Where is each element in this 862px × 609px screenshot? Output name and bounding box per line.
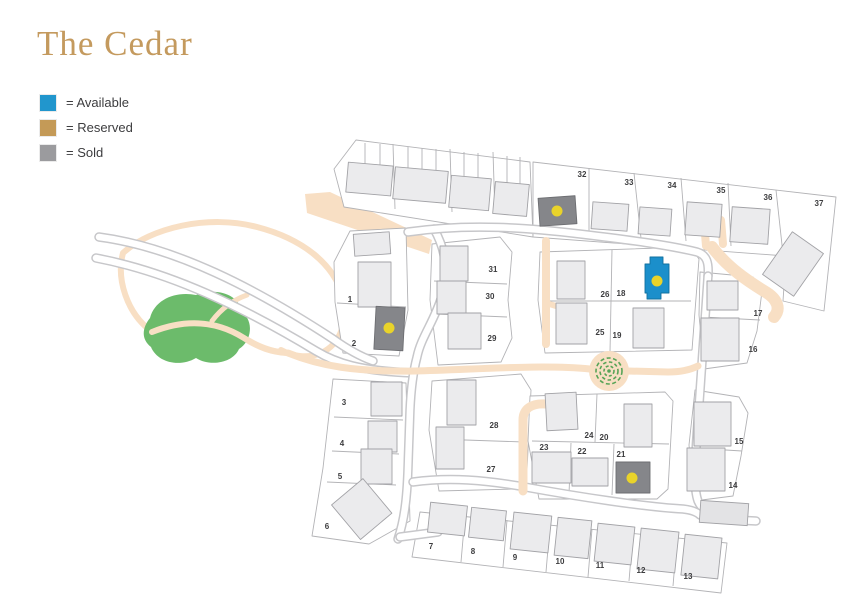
- plot-label-22: 22: [578, 447, 587, 456]
- house-plot-5: [361, 449, 392, 484]
- plot-label-6: 6: [325, 522, 330, 531]
- footpath-fork-b: [721, 220, 723, 244]
- house-plot-3: [371, 382, 402, 416]
- unit-marker-32: [552, 206, 563, 217]
- plot-label-28: 28: [490, 421, 499, 430]
- plot-label-16: 16: [749, 345, 758, 354]
- footpath-east-of-roundabout: [628, 366, 698, 372]
- house-plot-10: [554, 517, 592, 558]
- plot-label-18: 18: [617, 289, 626, 298]
- plot-label-20: 20: [600, 433, 609, 442]
- house-plot-16: [701, 318, 739, 361]
- house-plot-15: [694, 402, 731, 446]
- plot-label-26: 26: [601, 290, 610, 299]
- plot-label-33: 33: [625, 178, 634, 187]
- plot-label-5: 5: [338, 472, 343, 481]
- plot-label-9: 9: [513, 553, 518, 562]
- plot-label-1: 1: [348, 295, 353, 304]
- plot-label-31: 31: [489, 265, 498, 274]
- plot-label-14: 14: [729, 481, 738, 490]
- house-plot-8: [469, 507, 507, 540]
- plot-label-27: 27: [487, 465, 496, 474]
- plot-label-37: 37: [815, 199, 824, 208]
- house-plot-4: [368, 421, 397, 452]
- plot-label-15: 15: [735, 437, 744, 446]
- unit-marker-2: [384, 323, 395, 334]
- plot-label-24: 24: [585, 431, 594, 440]
- unit-marker-21: [627, 473, 638, 484]
- garage-block: [699, 500, 748, 525]
- unit-marker-18: [652, 276, 663, 287]
- plot-label-19: 19: [613, 331, 622, 340]
- house-plot-14: [687, 448, 725, 491]
- plot-label-32: 32: [578, 170, 587, 179]
- house-plot-25: [556, 303, 587, 344]
- house-plot-1: [358, 262, 391, 307]
- plot-label-25: 25: [596, 328, 605, 337]
- house-plot-36: [730, 207, 770, 245]
- house-plot-17: [707, 281, 738, 310]
- house-plot-35: [685, 202, 722, 237]
- plot-label-2: 2: [352, 339, 357, 348]
- house-plot-1-annex: [353, 232, 390, 256]
- house-plot-22: [572, 458, 608, 486]
- house-plot-7: [428, 502, 468, 536]
- house-plot-9: [510, 512, 552, 553]
- house-plot-26: [557, 261, 585, 299]
- house-plot-11: [594, 523, 635, 565]
- plot-label-8: 8: [471, 547, 476, 556]
- plot-label-3: 3: [342, 398, 347, 407]
- house-plot-33: [591, 202, 629, 231]
- house-plot-31: [440, 246, 468, 281]
- roundabout: [589, 351, 629, 391]
- plot-label-7: 7: [429, 542, 434, 551]
- terrace-group-2: [393, 167, 449, 203]
- house-plot-19: [633, 308, 664, 348]
- plot-label-21: 21: [617, 450, 626, 459]
- house-plot-27: [436, 427, 464, 469]
- terrace-group-3: [449, 175, 492, 210]
- house-plot-30: [437, 281, 466, 314]
- plot-label-34: 34: [668, 181, 677, 190]
- site-map: 1234567891011121314151617181920212223242…: [0, 0, 862, 609]
- plot-label-36: 36: [764, 193, 773, 202]
- plot-label-4: 4: [340, 439, 345, 448]
- plot-label-30: 30: [486, 292, 495, 301]
- plot-label-12: 12: [637, 566, 646, 575]
- plot-label-29: 29: [488, 334, 497, 343]
- house-plot-28: [447, 380, 476, 425]
- house-plot-24: [545, 392, 578, 431]
- terrace-group-4: [493, 182, 530, 217]
- roundabout-center-dot: [607, 369, 611, 373]
- house-plot-34: [638, 207, 672, 236]
- plot-label-17: 17: [754, 309, 763, 318]
- plot-label-35: 35: [717, 186, 726, 195]
- house-plot-23: [532, 452, 571, 483]
- plot-label-11: 11: [596, 561, 605, 570]
- plot-label-10: 10: [556, 557, 565, 566]
- plot-label-13: 13: [684, 572, 693, 581]
- terrace-group-1: [346, 162, 393, 196]
- site-plan-page: The Cedar = Available = Reserved = Sold: [0, 0, 862, 609]
- house-plot-20: [624, 404, 652, 447]
- house-plot-29: [448, 313, 481, 349]
- plot-label-23: 23: [540, 443, 549, 452]
